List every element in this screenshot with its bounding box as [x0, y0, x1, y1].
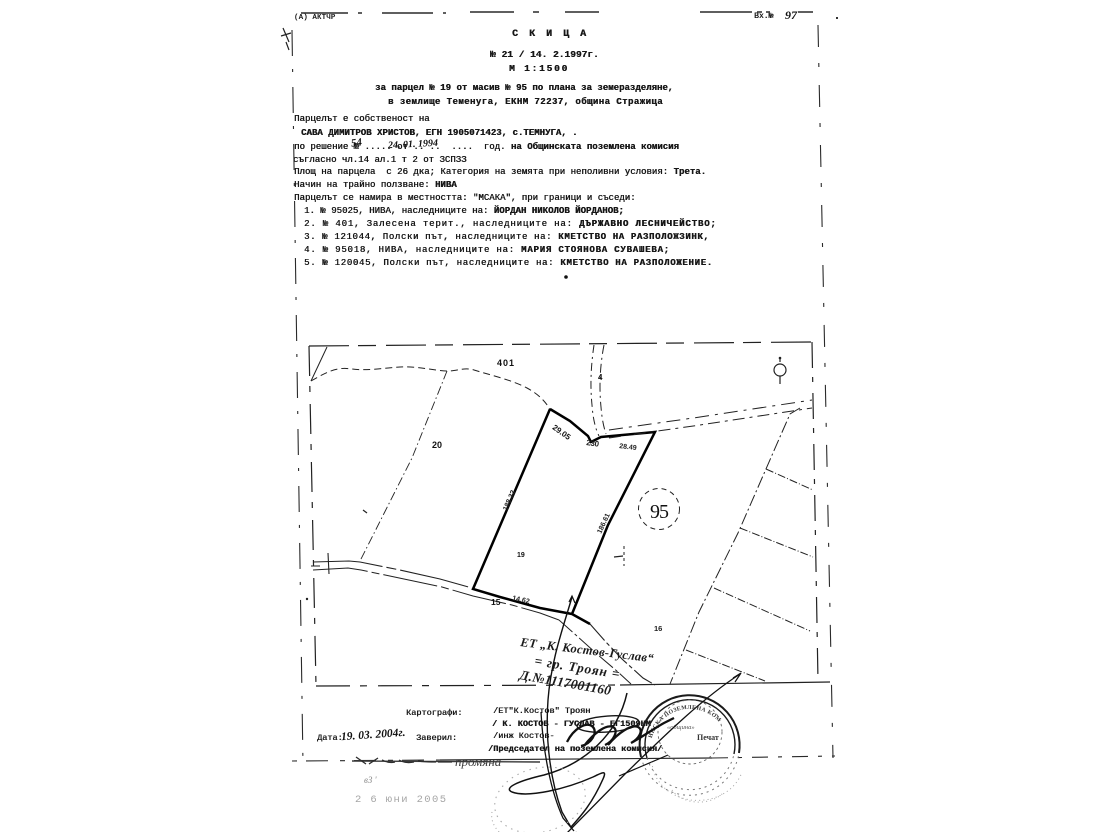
svg-text:230: 230	[586, 438, 600, 449]
svg-text:Печат: Печат	[697, 733, 719, 742]
svg-text:16: 16	[654, 624, 662, 633]
svg-text:28.49: 28.49	[619, 443, 637, 452]
svg-text:4: 4	[598, 373, 603, 382]
svg-text:15: 15	[491, 597, 501, 607]
svg-text:95: 95	[650, 501, 669, 523]
svg-text:20: 20	[432, 440, 442, 450]
svg-text:29.05: 29.05	[551, 423, 573, 442]
svg-text:19: 19	[517, 552, 525, 559]
svg-text:401: 401	[497, 358, 515, 368]
svg-text:188.32: 188.32	[502, 489, 517, 512]
